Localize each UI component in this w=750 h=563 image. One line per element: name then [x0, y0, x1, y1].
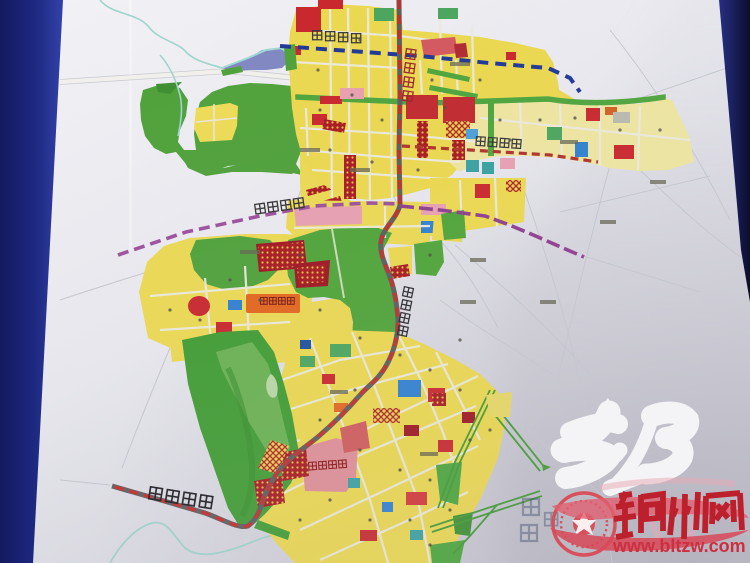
svg-text:www.bltzw.com: www.bltzw.com [612, 536, 746, 556]
